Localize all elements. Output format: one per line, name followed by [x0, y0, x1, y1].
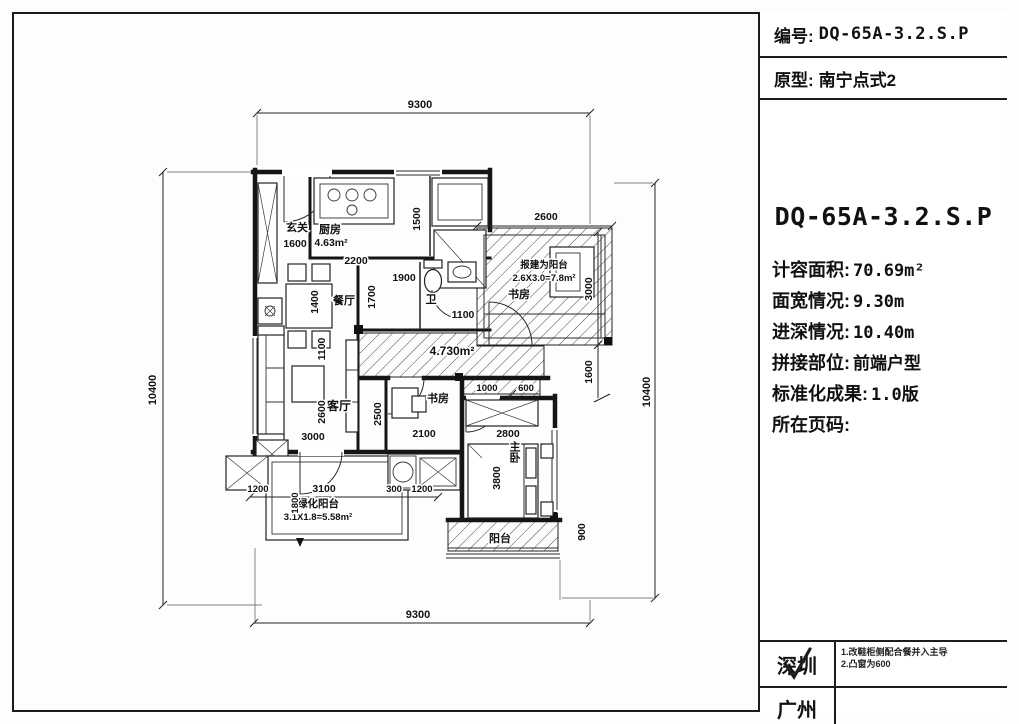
study-furniture [388, 378, 426, 418]
header-prototype-row: 原型: 南宁点式2 [760, 58, 1007, 100]
spec-value: 70.69m² [853, 261, 925, 281]
city-notes [836, 688, 1007, 724]
spec-row: 计容面积:70.69m² [772, 255, 1007, 286]
city-notes: 1.改鞋柜侧配合餐并入主导 2.凸窗为600 [836, 642, 1007, 686]
spec-label: 计容面积: [772, 260, 850, 280]
spec-value: 10.40m [853, 323, 914, 343]
spec-row: 面宽情况:9.30m [772, 286, 1007, 317]
dim-living-w: 3000 [301, 431, 325, 443]
city-row-guangzhou: 广州 [760, 688, 1007, 724]
floor-plan: 9300 9300 10400 10400 玄关 1600 厨房 4.63m² … [0, 0, 758, 724]
room-entry: 玄关 [286, 220, 308, 234]
dim-living-d: 2600 [316, 400, 328, 424]
city-note-line: 2.凸窗为600 [841, 658, 1002, 670]
city-name-text: 广州 [777, 694, 817, 723]
spec-value: 前端户型 [853, 354, 921, 374]
dim-master-d: 3800 [491, 466, 503, 490]
city-name: 深圳 [760, 642, 836, 686]
prototype-label: 原型: [774, 66, 814, 91]
room-kitchen: 厨房 [319, 222, 341, 236]
dim-closet-a: 1000 [476, 383, 497, 394]
spec-label: 所在页码: [772, 415, 850, 435]
dim-kitchen-w: 2200 [344, 255, 368, 267]
room-green-balcony: 绿化阳台 [297, 497, 339, 510]
spec-label: 标准化成果: [772, 384, 868, 404]
city-row-shenzhen: 深圳 1.改鞋柜侧配合餐并入主导 2.凸窗为600 [760, 642, 1007, 688]
dim-topright-w: 2600 [534, 211, 558, 223]
city-name: 广州 [760, 688, 836, 724]
spec-row: 所在页码: [772, 410, 1007, 441]
dim-bot-a: 1200 [247, 484, 268, 495]
dim-bot-b: 3100 [312, 483, 336, 495]
dim-closet-b: 600 [518, 383, 534, 394]
dim-green-d: 1800 [290, 492, 301, 513]
prototype-value: 南宁点式2 [819, 66, 896, 91]
dim-topright-d: 3000 [583, 277, 595, 301]
dim-bot-c: 300 [386, 484, 402, 495]
drawing-sheet: 9300 9300 10400 10400 玄关 1600 厨房 4.63m² … [0, 0, 1019, 724]
room-master: 主卧 [508, 440, 521, 463]
dim-left: 10400 [147, 375, 159, 406]
number-value: DQ-65A-3.2.S.P [819, 24, 969, 44]
room-balcony: 阳台 [489, 531, 511, 545]
dim-master-w: 2800 [496, 428, 520, 440]
dim-study-d: 2500 [372, 402, 384, 426]
dim-top: 9300 [408, 99, 432, 111]
dim-entry-w: 1600 [283, 238, 307, 250]
room-bath: 卫 [426, 293, 437, 306]
specs-list: 计容面积:70.69m² 面宽情况:9.30m 进深情况:10.40m 拼接部位… [772, 255, 1007, 441]
room-study: 书房 [427, 391, 449, 405]
dim-study-w: 2100 [412, 428, 436, 440]
spec-label: 进深情况: [772, 322, 850, 342]
city-note-line: 1.改鞋柜侧配合餐并入主导 [841, 646, 1002, 658]
dim-marker [296, 538, 304, 547]
spec-value: 1.0版 [871, 385, 919, 405]
dim-bottom: 9300 [406, 609, 430, 621]
spec-row: 进深情况:10.40m [772, 317, 1007, 348]
spec-label: 面宽情况: [772, 291, 850, 311]
dim-bot-d: 1200 [411, 484, 432, 495]
dim-bath-d: 1700 [366, 285, 378, 309]
header-number-row: 编号: DQ-65A-3.2.S.P [760, 12, 1007, 58]
spec-label: 拼接部位: [772, 353, 850, 373]
unit-code-title: DQ-65A-3.2.S.P [760, 202, 1007, 231]
room-living: 客厅 [326, 398, 351, 413]
title-block: 编号: DQ-65A-3.2.S.P 原型: 南宁点式2 DQ-65A-3.2.… [758, 12, 1007, 712]
corridor-area: 4.730m² [430, 344, 475, 358]
dim-right-step: 1600 [583, 360, 595, 384]
room-dining: 餐厅 [332, 293, 355, 307]
room-study-top: 书房 [508, 287, 530, 301]
spec-row: 标准化成果:1.0版 [772, 379, 1007, 410]
dim-kitchen-d: 1500 [411, 207, 423, 231]
number-label: 编号: [774, 22, 814, 47]
checkmark-icon [780, 645, 816, 685]
spec-row: 拼接部位:前端户型 [772, 348, 1007, 379]
dim-balcony-d: 900 [576, 523, 588, 541]
note-registered: 报建为阳台 [520, 259, 568, 271]
dim-right: 10400 [641, 377, 653, 408]
room-kitchen-area: 4.63m² [314, 237, 348, 249]
main-info-cell: DQ-65A-3.2.S.P 计容面积:70.69m² 面宽情况:9.30m 进… [760, 202, 1007, 642]
dim-bath-w: 1900 [392, 272, 416, 284]
dim-corr-w: 1100 [452, 309, 475, 321]
note-registered-area: 2.6X3.0=7.8m² [512, 273, 575, 284]
dim-dining-d: 1400 [309, 290, 321, 314]
spec-value: 9.30m [853, 292, 904, 312]
dim-living-top: 1100 [316, 337, 328, 360]
